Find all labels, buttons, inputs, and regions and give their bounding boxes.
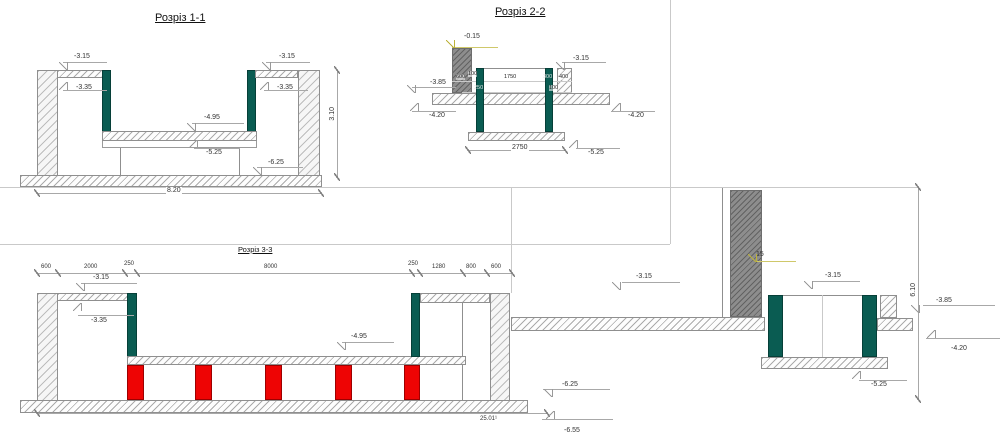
level-label: -6.55	[564, 427, 580, 435]
section-2-2-title: Розріз 2-2	[495, 6, 545, 19]
dim-label: 1280	[432, 264, 445, 271]
dim-label: 800	[466, 264, 476, 271]
level-line	[81, 283, 137, 284]
level-label: -5.25	[206, 149, 222, 157]
wall-hatch	[37, 293, 58, 401]
slab-hatch	[127, 356, 466, 365]
slab-hatch	[102, 131, 257, 141]
slab-hatch	[57, 70, 103, 78]
segment-dim-label: 300	[543, 74, 552, 80]
level-line	[576, 148, 620, 149]
level-label: -5.25	[871, 381, 887, 389]
dim-label: 600	[41, 264, 51, 271]
column-red	[404, 365, 420, 400]
dim-tick-icon	[34, 409, 40, 417]
level-flag-icon	[556, 62, 565, 70]
column-teal	[102, 70, 111, 132]
level-label: -3.15	[74, 53, 90, 61]
segment-dim-label: 400	[559, 74, 568, 80]
foundation-slab-hatch	[761, 357, 888, 369]
dim-line	[918, 187, 919, 400]
dim-label: 25.01¹	[480, 416, 497, 423]
dim-label: 8.20	[166, 187, 182, 195]
slab-hatch	[420, 293, 490, 303]
block-hatch	[880, 295, 897, 318]
inner-divider-line	[822, 295, 823, 357]
level-label: -4.20	[429, 112, 445, 120]
edge-line	[484, 68, 545, 69]
segment-dim-label: 100	[549, 85, 558, 91]
level-line	[542, 419, 613, 420]
level-flag-icon	[927, 330, 936, 338]
dim-line	[37, 413, 547, 414]
level-flag-icon	[260, 82, 269, 90]
level-flag-icon	[569, 140, 578, 148]
dim-tick-icon	[484, 269, 490, 277]
dim-tick-icon	[318, 189, 324, 197]
level-flag-icon	[911, 305, 920, 313]
reference-line-horizontal	[0, 244, 670, 245]
column-red	[335, 365, 352, 400]
level-label: -3.85	[430, 79, 446, 87]
foundation-slab-hatch	[20, 175, 322, 187]
dim-tick-icon	[34, 189, 40, 197]
pedestal-line	[120, 148, 121, 175]
dim-tick-icon	[915, 183, 921, 191]
column-teal	[862, 295, 877, 357]
level-line-yellow	[756, 261, 796, 262]
column-red	[265, 365, 282, 400]
level-line	[926, 338, 1000, 339]
level-line	[412, 87, 456, 88]
dim-label: 250	[124, 261, 134, 268]
level-label: -4.20	[951, 345, 967, 353]
level-label: -4.95	[351, 333, 367, 341]
pedestal-line	[239, 148, 240, 175]
dim-tick-icon	[34, 269, 40, 277]
level-flag-icon	[612, 103, 621, 111]
slab-hatch	[57, 293, 128, 301]
dim-label: 8000	[264, 264, 277, 271]
level-flag-icon	[804, 281, 813, 289]
segment-dim-label: 100	[468, 71, 477, 77]
level-line	[194, 148, 240, 149]
level-label: -3.85	[936, 297, 952, 305]
level-label: -6.25	[562, 381, 578, 389]
level-line	[63, 90, 107, 91]
level-line	[562, 62, 606, 63]
level-line	[412, 111, 456, 112]
foundation-slab-hatch	[20, 400, 528, 413]
level-label: -3.15	[279, 53, 295, 61]
slab-hatch	[877, 318, 913, 331]
column-teal	[476, 68, 484, 132]
column-teal	[247, 70, 256, 132]
level-label: -0.15	[464, 33, 480, 41]
foundation-slab-hatch	[468, 132, 565, 141]
level-flag-icon	[73, 303, 82, 311]
column-red	[195, 365, 212, 400]
level-line	[78, 315, 134, 316]
level-line	[192, 123, 244, 124]
column-red	[127, 365, 144, 400]
dim-tick-icon	[509, 269, 515, 277]
level-flag-icon	[59, 62, 68, 70]
dim-label: 250	[408, 261, 418, 268]
level-label: -3.15	[825, 272, 841, 280]
level-line	[859, 380, 907, 381]
dim-label: 600	[491, 264, 501, 271]
dim-tick-icon	[134, 269, 140, 277]
slab-hatch	[511, 317, 765, 331]
level-line	[266, 62, 310, 63]
slab-band-outline	[102, 141, 257, 148]
level-flag-icon	[189, 140, 198, 148]
wall-hatch	[490, 293, 510, 403]
level-line-yellow	[452, 47, 498, 48]
level-label: -6.25	[268, 159, 284, 167]
level-flag-icon	[407, 85, 416, 93]
dim-tick-icon	[417, 269, 423, 277]
level-label: -3.15	[93, 274, 109, 282]
dim-tick-icon	[334, 173, 340, 181]
column-teal	[127, 293, 137, 357]
level-label: -5.25	[588, 149, 604, 157]
wall-hatch	[298, 70, 320, 177]
cad-drawing-canvas: Розріз 1-1 -3.15 -3.35 -4.95 -5.25 -6.25…	[0, 0, 1000, 438]
level-flag-icon	[546, 411, 555, 419]
level-flag-icon	[852, 371, 861, 379]
dim-label: 2000	[84, 264, 97, 271]
level-line	[63, 62, 107, 63]
level-flag-icon	[446, 40, 455, 48]
level-line	[257, 167, 303, 168]
level-flag-icon	[59, 82, 68, 90]
dim-label: 6.10	[910, 283, 917, 297]
section-1-1-title: Розріз 1-1	[155, 12, 205, 25]
dim-tick-icon	[562, 146, 568, 154]
dim-label: 2750	[511, 144, 529, 152]
dim-tick-icon	[465, 146, 471, 154]
level-flag-icon	[262, 62, 271, 70]
dim-tick-icon	[334, 66, 340, 74]
dim-label: 3.10	[329, 107, 336, 121]
level-flag-icon	[748, 254, 757, 262]
reference-line-vertical	[511, 187, 512, 293]
inner-wall-line	[462, 365, 463, 400]
level-flag-icon	[253, 167, 262, 175]
slab-hatch	[432, 93, 610, 105]
reference-line-vertical	[670, 0, 671, 244]
segment-dim-label: 600	[456, 74, 465, 80]
level-flag-icon	[410, 103, 419, 111]
column-teal	[768, 295, 783, 357]
level-label: -3.15	[636, 273, 652, 281]
segment-dim-label: 250	[474, 85, 483, 91]
level-flag-icon	[187, 123, 196, 131]
inner-wall-line	[462, 303, 463, 356]
wall-edge-line	[722, 188, 723, 317]
level-flag-icon	[612, 282, 621, 290]
level-label: -4.95	[204, 114, 220, 122]
level-line	[611, 111, 655, 112]
level-line	[812, 281, 860, 282]
dim-line	[337, 70, 338, 177]
level-line	[543, 389, 610, 390]
level-label: 15	[756, 251, 764, 259]
level-flag-icon	[544, 389, 553, 397]
level-line	[622, 282, 680, 283]
dim-tick-icon	[55, 269, 61, 277]
level-line	[923, 305, 995, 306]
level-line	[264, 90, 308, 91]
slab-hatch	[255, 70, 298, 78]
segment-dim-label: 1750	[504, 74, 516, 80]
dim-tick-icon	[409, 269, 415, 277]
dim-line	[452, 81, 572, 82]
section-3-3-title: Розріз 3-3	[238, 245, 272, 254]
column-teal	[411, 293, 420, 357]
level-line	[342, 342, 394, 343]
level-flag-icon	[76, 283, 85, 291]
dim-tick-icon	[122, 269, 128, 277]
wall-hatch	[37, 70, 58, 177]
level-label: -3.35	[90, 317, 108, 325]
level-flag-icon	[337, 342, 346, 350]
reference-line-horizontal	[0, 187, 917, 188]
dim-tick-icon	[915, 395, 921, 403]
level-label: -4.20	[628, 112, 644, 120]
